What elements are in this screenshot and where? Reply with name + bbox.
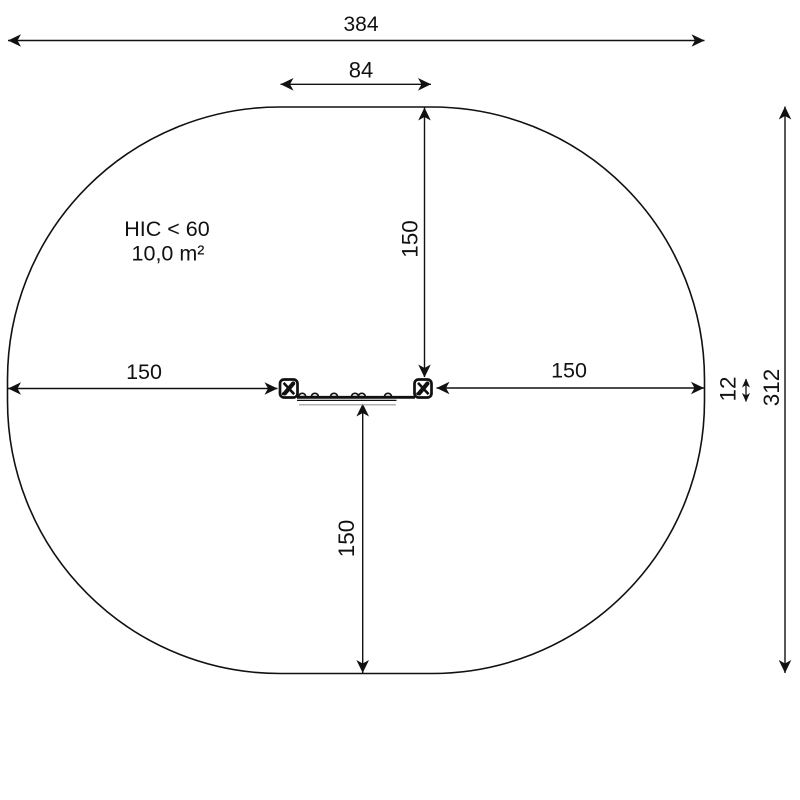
svg-text:12: 12 <box>716 376 741 401</box>
svg-text:HIC < 60: HIC < 60 <box>124 217 209 241</box>
svg-text:384: 384 <box>343 13 378 36</box>
svg-text:150: 150 <box>551 359 587 383</box>
svg-text:150: 150 <box>397 220 422 258</box>
svg-text:312: 312 <box>759 369 784 407</box>
svg-text:150: 150 <box>126 360 162 384</box>
svg-text:150: 150 <box>334 520 359 558</box>
svg-text:10,0 m²: 10,0 m² <box>132 242 205 266</box>
svg-text:84: 84 <box>349 58 373 83</box>
